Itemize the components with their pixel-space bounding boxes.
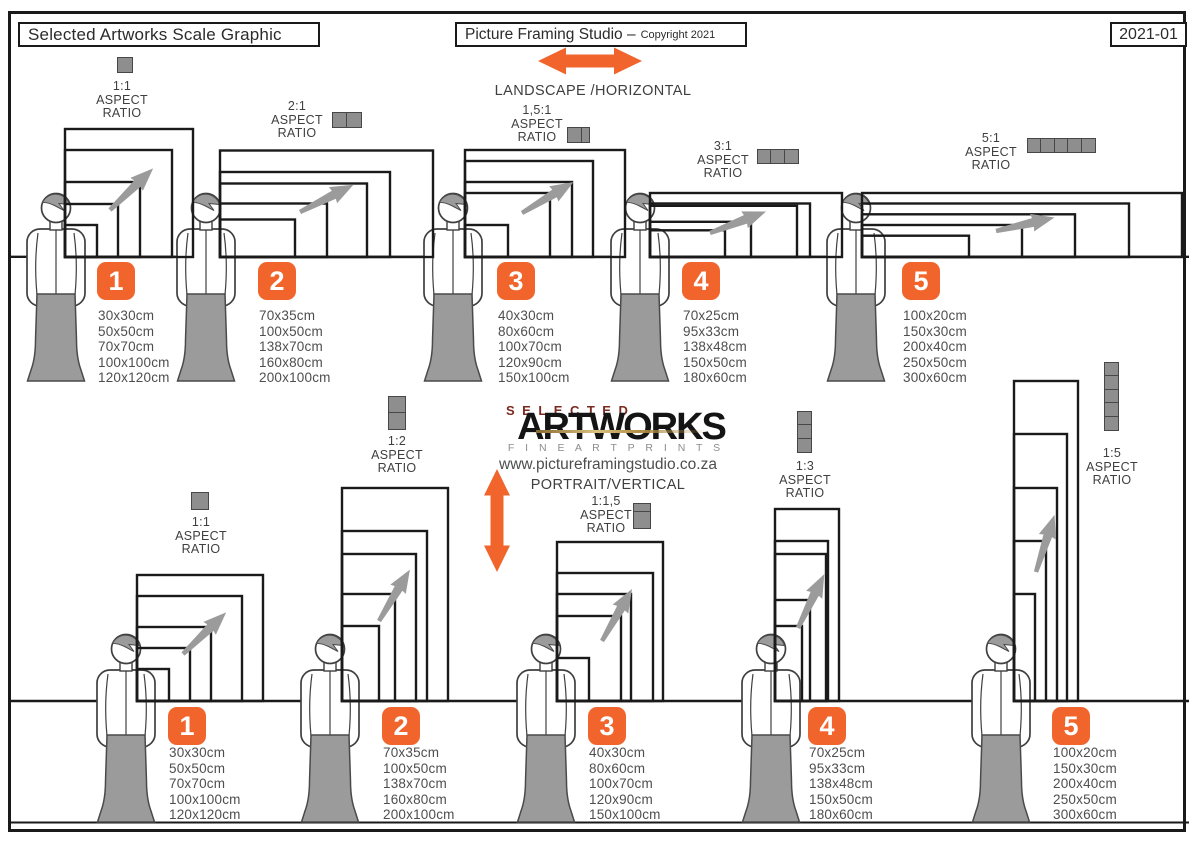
frame: [220, 204, 327, 258]
aspect-1-1_5-icon: [633, 503, 651, 529]
aspect-label-landscape-5: 5:1 ASPECT RATIO: [965, 132, 1017, 173]
aspect-label-portrait-4: 1:3 ASPECT RATIO: [779, 460, 831, 501]
ratio-word: RATIO: [175, 543, 227, 557]
ratio-word: RATIO: [271, 127, 323, 141]
size-line: 70x70cm: [98, 339, 170, 355]
size-line: 200x40cm: [1053, 776, 1117, 792]
size-line: 138x70cm: [383, 776, 455, 792]
size-line: 70x70cm: [169, 776, 241, 792]
group-badge-portrait-4: 4: [808, 707, 846, 745]
aspect-ratio-value: 1:3: [779, 460, 831, 474]
aspect-ratio-value: 1,5:1: [511, 104, 563, 118]
edition-box: 2021-01: [1110, 22, 1187, 47]
size-line: 100x20cm: [903, 308, 967, 324]
aspect-label-portrait-1: 1:1 ASPECT RATIO: [175, 516, 227, 557]
size-list-landscape-5: 100x20cm150x30cm200x40cm250x50cm300x60cm: [903, 308, 967, 386]
ratio-word: RATIO: [580, 522, 632, 536]
aspect-ratio-value: 1:5: [1086, 447, 1138, 461]
group-badge-portrait-1: 1: [168, 707, 206, 745]
frame: [465, 150, 625, 257]
size-line: 30x30cm: [98, 308, 170, 324]
aspect-word: ASPECT: [511, 118, 563, 132]
size-line: 138x70cm: [259, 339, 331, 355]
group-badge-landscape-4: 4: [682, 262, 720, 300]
ratio-word: RATIO: [371, 462, 423, 476]
aspect-word: ASPECT: [1086, 461, 1138, 475]
aspect-1-1-icon: [117, 57, 133, 73]
person-figure: [97, 635, 155, 823]
frames-landscape-2-1: [220, 151, 433, 258]
logo-tagline: F I N E A R T P R I N T S: [508, 442, 724, 454]
size-line: 120x120cm: [98, 370, 170, 386]
size-line: 40x30cm: [498, 308, 570, 324]
aspect-ratio-value: 1:1,5: [580, 495, 632, 509]
ratio-word: RATIO: [96, 107, 148, 121]
size-line: 150x50cm: [809, 792, 873, 808]
person-figure: [742, 635, 800, 823]
size-line: 95x33cm: [809, 761, 873, 777]
ratio-word: RATIO: [511, 131, 563, 145]
edition-number: 2021-01: [1119, 26, 1178, 44]
ratio-word: RATIO: [1086, 474, 1138, 488]
website-url: www.pictureframingstudio.co.za: [499, 456, 717, 474]
frame: [862, 204, 1129, 258]
size-line: 138x48cm: [683, 339, 747, 355]
ratio-word: RATIO: [779, 487, 831, 501]
size-line: 100x70cm: [589, 776, 661, 792]
ratio-word: RATIO: [965, 159, 1017, 173]
person-figure: [517, 635, 575, 823]
aspect-word: ASPECT: [965, 146, 1017, 160]
aspect-ratio-value: 5:1: [965, 132, 1017, 146]
size-line: 150x30cm: [903, 324, 967, 340]
size-line: 95x33cm: [683, 324, 747, 340]
size-line: 40x30cm: [589, 745, 661, 761]
size-line: 70x25cm: [683, 308, 747, 324]
scale-arrow-icon: [104, 162, 160, 217]
aspect-ratio-value: 2:1: [271, 100, 323, 114]
size-line: 100x20cm: [1053, 745, 1117, 761]
size-line: 160x80cm: [383, 792, 455, 808]
aspect-1-5-icon: [1104, 362, 1119, 431]
size-line: 120x90cm: [498, 355, 570, 371]
size-list-portrait-1: 30x30cm50x50cm70x70cm100x100cm120x120cm: [169, 745, 241, 823]
copyright-text: Copyright 2021: [641, 29, 716, 41]
size-line: 80x60cm: [589, 761, 661, 777]
aspect-3-1-icon: [757, 149, 799, 164]
size-line: 30x30cm: [169, 745, 241, 761]
size-line: 100x100cm: [98, 355, 170, 371]
aspect-2-1-icon: [332, 112, 362, 128]
frame: [220, 172, 390, 257]
person-figure: [301, 635, 359, 823]
size-line: 180x60cm: [683, 370, 747, 386]
size-line: 100x100cm: [169, 792, 241, 808]
size-line: 100x50cm: [259, 324, 331, 340]
group-badge-landscape-3: 3: [497, 262, 535, 300]
horizontal-direction-arrow-icon: [538, 48, 642, 75]
logo-strike-line: [536, 430, 708, 433]
poster-title: Selected Artworks Scale Graphic: [28, 25, 282, 45]
size-line: 250x50cm: [1053, 792, 1117, 808]
aspect-ratio-value: 1:1: [175, 516, 227, 530]
size-list-portrait-5: 100x20cm150x30cm200x40cm250x50cm300x60cm: [1053, 745, 1117, 823]
portrait-direction-label: PORTRAIT/VERTICAL: [531, 477, 686, 493]
person-figure: [827, 194, 885, 382]
aspect-word: ASPECT: [580, 509, 632, 523]
aspect-label-portrait-2: 1:2 ASPECT RATIO: [371, 435, 423, 476]
aspect-1_5-1-icon: [567, 127, 590, 143]
aspect-1-2-icon: [388, 396, 406, 430]
aspect-label-landscape-2: 2:1 ASPECT RATIO: [271, 100, 323, 141]
aspect-word: ASPECT: [371, 449, 423, 463]
poster-page: Selected Artworks Scale Graphic Picture …: [0, 0, 1200, 842]
aspect-1-3-icon: [797, 411, 812, 453]
vertical-direction-arrow-icon: [484, 469, 510, 572]
size-list-landscape-4: 70x25cm95x33cm138x48cm150x50cm180x60cm: [683, 308, 747, 386]
person-figure: [27, 194, 85, 382]
aspect-label-landscape-3: 1,5:1 ASPECT RATIO: [511, 104, 563, 145]
ratio-word: RATIO: [697, 167, 749, 181]
size-line: 138x48cm: [809, 776, 873, 792]
size-line: 70x25cm: [809, 745, 873, 761]
group-badge-landscape-1: 1: [97, 262, 135, 300]
size-line: 100x50cm: [383, 761, 455, 777]
frame: [1014, 434, 1067, 701]
size-line: 100x70cm: [498, 339, 570, 355]
size-line: 180x60cm: [809, 807, 873, 823]
size-line: 80x60cm: [498, 324, 570, 340]
group-badge-portrait-2: 2: [382, 707, 420, 745]
size-list-portrait-3: 40x30cm80x60cm100x70cm120x90cm150x100cm: [589, 745, 661, 823]
size-line: 150x100cm: [589, 807, 661, 823]
size-line: 120x120cm: [169, 807, 241, 823]
size-line: 160x80cm: [259, 355, 331, 371]
size-list-portrait-4: 70x25cm95x33cm138x48cm150x50cm180x60cm: [809, 745, 873, 823]
studio-title-box: Picture Framing Studio – Copyright 2021: [455, 22, 747, 47]
frames-landscape-3-1: [650, 193, 842, 257]
group-badge-portrait-5: 5: [1052, 707, 1090, 745]
aspect-ratio-value: 1:1: [96, 80, 148, 94]
landscape-direction-label: LANDSCAPE /HORIZONTAL: [495, 83, 692, 99]
aspect-label-portrait-3: 1:1,5 ASPECT RATIO: [580, 495, 632, 536]
aspect-word: ASPECT: [96, 94, 148, 108]
logo-artworks-text: ARTWORKS: [517, 409, 725, 445]
size-list-portrait-2: 70x35cm100x50cm138x70cm160x80cm200x100cm: [383, 745, 455, 823]
size-line: 200x100cm: [259, 370, 331, 386]
aspect-word: ASPECT: [271, 114, 323, 128]
group-badge-landscape-2: 2: [258, 262, 296, 300]
studio-title: Picture Framing Studio –: [465, 26, 636, 44]
size-list-landscape-3: 40x30cm80x60cm100x70cm120x90cm150x100cm: [498, 308, 570, 386]
person-figure: [972, 635, 1030, 823]
size-line: 200x40cm: [903, 339, 967, 355]
aspect-word: ASPECT: [697, 154, 749, 168]
aspect-word: ASPECT: [175, 530, 227, 544]
size-line: 150x50cm: [683, 355, 747, 371]
size-line: 250x50cm: [903, 355, 967, 371]
aspect-label-portrait-5: 1:5 ASPECT RATIO: [1086, 447, 1138, 488]
poster-title-box: Selected Artworks Scale Graphic: [18, 22, 320, 47]
size-line: 300x60cm: [1053, 807, 1117, 823]
size-line: 150x100cm: [498, 370, 570, 386]
aspect-label-landscape-4: 3:1 ASPECT RATIO: [697, 140, 749, 181]
size-list-landscape-2: 70x35cm100x50cm138x70cm160x80cm200x100cm: [259, 308, 331, 386]
person-figure: [177, 194, 235, 382]
aspect-1-1-portrait-icon: [191, 492, 209, 510]
group-badge-landscape-5: 5: [902, 262, 940, 300]
aspect-ratio-value: 3:1: [697, 140, 749, 154]
size-line: 200x100cm: [383, 807, 455, 823]
aspect-5-1-icon: [1027, 138, 1096, 153]
group-badge-portrait-3: 3: [588, 707, 626, 745]
size-line: 50x50cm: [169, 761, 241, 777]
size-line: 150x30cm: [1053, 761, 1117, 777]
aspect-word: ASPECT: [779, 474, 831, 488]
frames-landscape-1_5-1: [465, 150, 625, 257]
aspect-label-landscape-1: 1:1 ASPECT RATIO: [96, 80, 148, 121]
size-line: 70x35cm: [383, 745, 455, 761]
size-list-landscape-1: 30x30cm50x50cm70x70cm100x100cm120x120cm: [98, 308, 170, 386]
size-line: 300x60cm: [903, 370, 967, 386]
size-line: 120x90cm: [589, 792, 661, 808]
aspect-ratio-value: 1:2: [371, 435, 423, 449]
size-line: 50x50cm: [98, 324, 170, 340]
scale-arrow-icon: [177, 606, 233, 661]
size-line: 70x35cm: [259, 308, 331, 324]
